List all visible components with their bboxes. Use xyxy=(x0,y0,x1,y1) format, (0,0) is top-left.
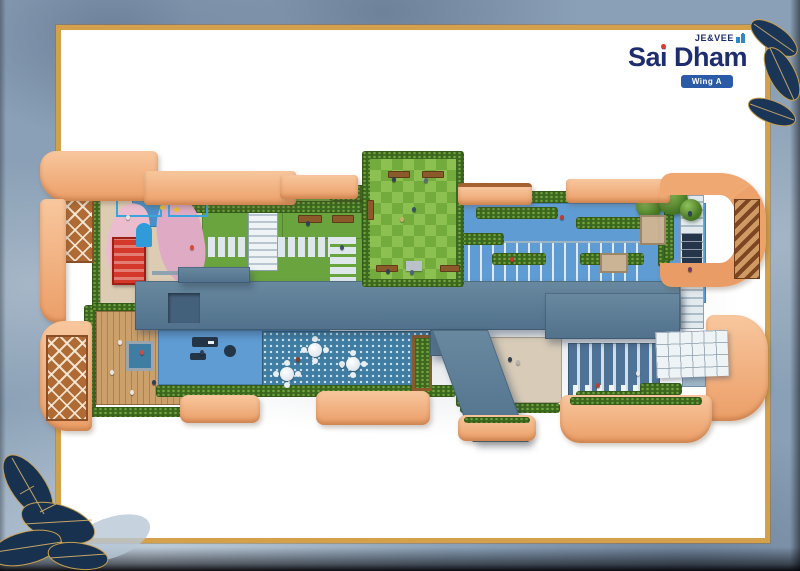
deck-plunge-basin xyxy=(126,341,154,371)
bench xyxy=(388,171,410,178)
person xyxy=(140,350,144,355)
bench xyxy=(298,215,322,223)
hedge-maze-1 xyxy=(476,207,558,219)
play-ball xyxy=(160,205,165,210)
logo-block: JE&VEE Sai Dham Wing A xyxy=(557,33,747,89)
gym-equipment xyxy=(224,345,236,357)
hedge-parapet-lip xyxy=(570,397,702,405)
person xyxy=(126,215,130,220)
slide-blue xyxy=(136,223,152,247)
person xyxy=(118,340,122,345)
bench xyxy=(332,215,354,223)
corner-leaves-bottom-left xyxy=(0,428,152,571)
person xyxy=(688,267,692,272)
wing-badge: Wing A xyxy=(681,75,733,88)
person xyxy=(152,380,156,385)
person xyxy=(200,350,204,355)
person xyxy=(510,257,514,262)
play-ball xyxy=(174,207,179,212)
rooftop-amenity-plan xyxy=(40,145,768,457)
hedge-glass-court xyxy=(640,383,682,395)
parapet-west-edge xyxy=(40,199,66,323)
cafe-planter xyxy=(412,335,432,391)
person xyxy=(340,245,344,250)
person xyxy=(412,207,416,212)
canopy-garden-pocket xyxy=(280,175,358,199)
person xyxy=(400,217,404,222)
person xyxy=(392,177,396,182)
core-roof-step xyxy=(178,267,250,283)
person xyxy=(424,178,428,183)
hedge-maze-3 xyxy=(492,253,546,265)
bench xyxy=(367,200,374,220)
cafe-table xyxy=(308,343,322,357)
person xyxy=(410,270,414,275)
person xyxy=(516,360,520,365)
person xyxy=(386,269,390,274)
parapet-north-west-corner xyxy=(40,151,158,201)
person xyxy=(306,221,310,226)
corner-leaves-top-right xyxy=(742,12,800,140)
bench xyxy=(422,171,444,178)
stepping-path-vertical xyxy=(330,237,356,281)
core-roof-stair-opening xyxy=(168,293,200,323)
person xyxy=(636,371,640,376)
person xyxy=(190,245,194,250)
bench xyxy=(440,265,460,272)
person xyxy=(560,215,564,220)
planter-south-2 xyxy=(316,391,430,425)
person xyxy=(340,363,344,368)
person xyxy=(688,211,692,216)
canopy-playground xyxy=(144,171,296,205)
person xyxy=(596,383,600,388)
louvered-screen-east xyxy=(734,199,760,279)
person xyxy=(508,357,512,362)
person xyxy=(130,390,134,395)
garden-table xyxy=(406,261,422,271)
cafe-table xyxy=(346,357,360,371)
staircase-block xyxy=(248,209,278,271)
planter-south-1 xyxy=(180,395,260,423)
hedge-planter-lip xyxy=(464,417,530,423)
cafe-table xyxy=(280,367,294,381)
gym-equipment xyxy=(192,337,218,347)
glass-canopy xyxy=(655,330,729,378)
trellis-pergola-south-west xyxy=(46,335,88,421)
planter-box xyxy=(600,253,628,273)
brochure-page: JE&VEE Sai Dham Wing A xyxy=(0,0,800,571)
project-name-text: Sai Dham xyxy=(628,42,747,72)
person xyxy=(110,370,114,375)
canopy-east-garden xyxy=(458,183,532,205)
parapet-north-east-band xyxy=(566,179,670,203)
logo-i-dot xyxy=(661,44,666,49)
gym-mat xyxy=(208,341,214,344)
gym-equipment xyxy=(190,353,206,360)
person xyxy=(296,357,300,362)
project-name: Sai Dham xyxy=(628,43,747,71)
